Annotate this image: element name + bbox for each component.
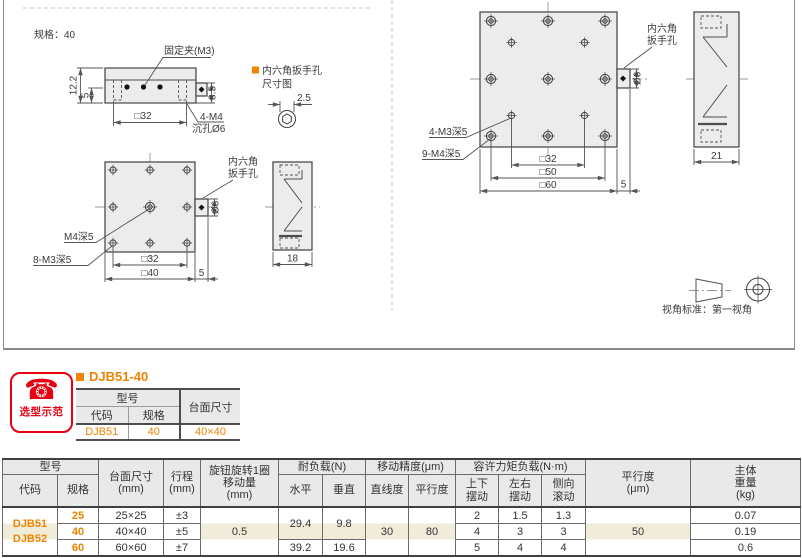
example-spec: 40 xyxy=(128,424,180,440)
example-title: DJB51-40 xyxy=(76,369,242,384)
cell-size: 60×60 xyxy=(99,540,164,557)
cell-parallelism: 80 xyxy=(409,507,456,556)
cell-spec: 60 xyxy=(58,540,99,557)
col-moment: 容许力矩负载(N·m) xyxy=(456,459,586,475)
col-pitch: 上下 摆动 xyxy=(456,475,499,508)
cell-yaw: 4 xyxy=(499,540,542,557)
cell-roll: 3 xyxy=(542,524,586,540)
cell-travel: ±5 xyxy=(164,524,201,540)
example-header-code: 代码 xyxy=(76,407,128,425)
col-knob-travel: 旋钮旋转1圈 移动量 (mm) xyxy=(201,459,279,507)
col-weight: 主体 重量 (kg) xyxy=(691,459,801,507)
col-straightness: 直线度 xyxy=(366,475,409,508)
cell-size: 40×40 xyxy=(99,524,164,540)
hex-note-subtitle: 尺寸图 xyxy=(262,78,292,91)
dim-sq50: □50 xyxy=(539,167,557,178)
spec-label: 规格：40 xyxy=(34,28,76,41)
spec-table: 型号 台面尺寸 (mm) 行程 (mm) 旋钮旋转1圈 移动量 (mm) 耐负载… xyxy=(2,458,801,557)
col-spec: 规格 xyxy=(58,475,99,508)
col-load: 耐负载(N) xyxy=(279,459,366,475)
col-yaw: 左右 摆动 xyxy=(499,475,542,508)
cell-pitch: 2 xyxy=(456,507,499,524)
dim-sq32-front: □32 xyxy=(134,111,152,122)
clamp-label: 固定夹(M3) xyxy=(164,44,215,57)
cell-parallel: 50 xyxy=(586,507,691,556)
selection-example-badge: ☎ 选型示范 xyxy=(10,372,73,433)
label-4m3d5: 4-M3深5 xyxy=(429,126,468,138)
view-standard-symbol: 视角标准：第一视角 xyxy=(662,276,772,317)
order-example: DJB51-40 型号 台面尺寸 代码 规格 DJB51 40 40×40 xyxy=(76,369,242,441)
col-code: 代码 xyxy=(3,475,58,508)
cell-yaw: 1.5 xyxy=(499,507,542,524)
hex-wrench-note: 内六角扳手孔 尺寸图 2.5 xyxy=(252,64,322,128)
badge-label: 选型示范 xyxy=(12,404,71,419)
cell-pitch: 5 xyxy=(456,540,499,557)
label-9m4d5: 9-M4深5 xyxy=(422,148,461,160)
example-header-spec: 规格 xyxy=(128,407,180,425)
cell-weight: 0.07 xyxy=(691,507,801,524)
dim-5-small: 5 xyxy=(199,268,205,279)
cell-pitch: 4 xyxy=(456,524,499,540)
dim-18: 18 xyxy=(287,254,299,265)
hex-note-title: 内六角扳手孔 xyxy=(262,64,322,77)
col-parallelism: 平行度 xyxy=(409,475,456,508)
example-part-number: DJB51-40 xyxy=(89,369,148,384)
table-row: DJB51 DJB52 25 25×25 ±3 0.5 29.4 9.8 30 … xyxy=(3,507,801,524)
col-travel: 行程 (mm) xyxy=(164,459,201,507)
note-counterbore: 沉孔Ø6 xyxy=(192,122,226,135)
cell-travel: ±7 xyxy=(164,540,201,557)
cell-roll: 1.3 xyxy=(542,507,586,524)
wrench-label-1: 内六角 xyxy=(647,22,677,35)
example-table: 型号 台面尺寸 代码 规格 DJB51 40 40×40 xyxy=(76,388,240,441)
cell-weight: 0.19 xyxy=(691,524,801,540)
dim-21: 21 xyxy=(711,151,723,162)
dim-sq60: □60 xyxy=(539,180,557,191)
cell-load-h: 29.4 xyxy=(279,507,323,540)
example-header-size: 台面尺寸 xyxy=(180,389,240,424)
label-m4d5: M4深5 xyxy=(64,231,94,243)
example-size: 40×40 xyxy=(180,424,240,440)
cell-size: 25×25 xyxy=(99,507,164,524)
dim-5-large: 5 xyxy=(621,180,627,191)
wrench-label-2: 扳手孔 xyxy=(647,34,677,47)
col-roll: 侧向 滚动 xyxy=(542,475,586,508)
cell-load-v: 9.8 xyxy=(323,507,366,540)
cell-codes: DJB51 DJB52 xyxy=(3,507,58,556)
cell-weight: 0.6 xyxy=(691,540,801,557)
col-parallel: 平行度 (μm) xyxy=(586,459,691,507)
phone-icon: ☎ xyxy=(12,375,71,404)
dim-2-5: 2.5 xyxy=(297,93,311,104)
col-load-v: 垂直 xyxy=(323,475,366,508)
cell-travel: ±3 xyxy=(164,507,201,524)
cell-spec: 25 xyxy=(58,507,99,524)
cell-yaw: 3 xyxy=(499,524,542,540)
hexagon-icon xyxy=(283,114,292,124)
orange-bullet-icon xyxy=(252,67,259,74)
small-top-view: Ø6 内六角 扳手孔 M4深5 8-M3深5 □32 □40 5 xyxy=(33,153,320,282)
col-load-h: 水平 xyxy=(279,475,323,508)
wrench-label-1: 内六角 xyxy=(228,155,258,168)
cell-roll: 4 xyxy=(542,540,586,557)
col-model: 型号 xyxy=(3,459,99,475)
dim-d6-small: Ø6 xyxy=(211,200,222,214)
view-standard-label: 视角标准：第一视角 xyxy=(662,303,752,316)
note-4m4: 4-M4 xyxy=(200,112,223,123)
large-top-view: Ø6 内六角 扳手孔 4-M3深5 9-M4深5 □32 □50 □60 5 xyxy=(422,2,748,194)
dim-sq32-large: □32 xyxy=(539,154,557,165)
wrench-label-2: 扳手孔 xyxy=(228,167,258,180)
cell-load-h: 39.2 xyxy=(279,540,323,557)
catalog-page: 规格：40 固定夹(M3) 12.2 5 8.5 xyxy=(0,0,802,558)
cell-knob-travel: 0.5 xyxy=(201,507,279,556)
dim-d6-large: Ø6 xyxy=(633,71,644,85)
dim-sq40: □40 xyxy=(141,268,159,279)
dim-12-2: 12.2 xyxy=(69,75,80,95)
col-accuracy: 移动精度(μm) xyxy=(366,459,456,475)
cell-straightness: 30 xyxy=(366,507,409,556)
orange-bullet-icon xyxy=(76,373,84,381)
example-code: DJB51 xyxy=(76,424,128,440)
example-header-model: 型号 xyxy=(76,389,180,407)
dim-sq32-small: □32 xyxy=(141,254,159,265)
col-size: 台面尺寸 (mm) xyxy=(99,459,164,507)
dim-8-5: 8.5 xyxy=(208,86,219,100)
dim-5: 5 xyxy=(81,92,92,98)
technical-drawings: 规格：40 固定夹(M3) 12.2 5 8.5 xyxy=(0,0,802,352)
cell-spec: 40 xyxy=(58,524,99,540)
cell-load-v: 19.6 xyxy=(323,540,366,557)
front-view: 固定夹(M3) 12.2 5 8.5 □32 4-M4 沉孔Ø6 xyxy=(69,44,226,135)
label-8m3d5: 8-M3深5 xyxy=(33,254,72,266)
